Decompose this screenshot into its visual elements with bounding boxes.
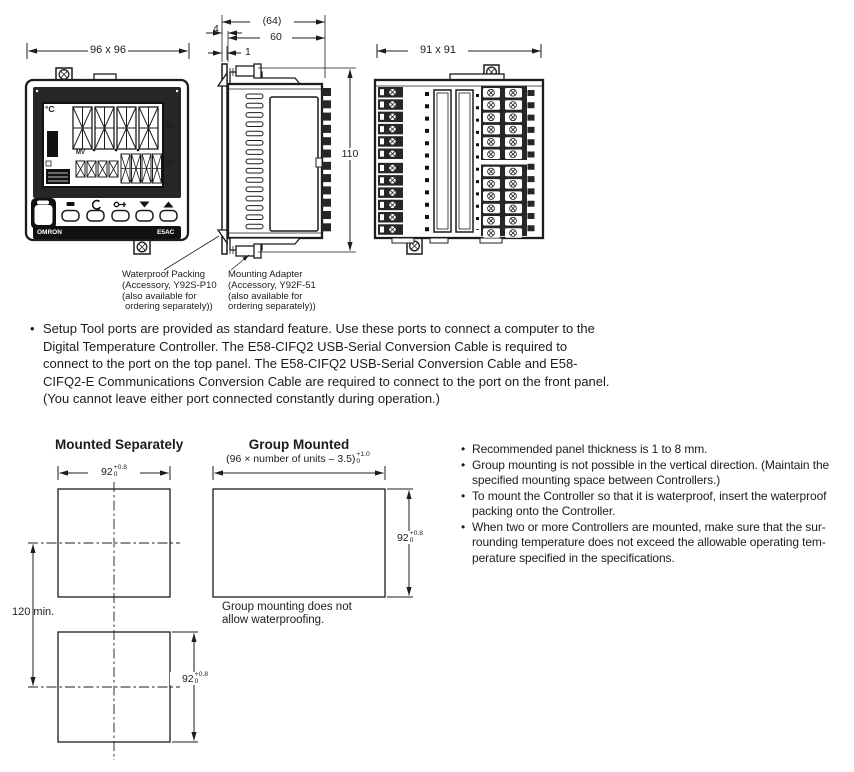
- mounting-adapter-callout: Mounting Adapter (Accessory, Y92F-51 (al…: [228, 270, 316, 313]
- side-height-dimension: 110: [334, 148, 366, 160]
- note-line: specified mounting space between Control…: [472, 473, 829, 489]
- bullet: •: [461, 458, 472, 489]
- setup-note-line: connect to the port on the top panel. Th…: [43, 355, 610, 373]
- group-mounted-drawing: [213, 466, 413, 597]
- dim-tolerance-lower: 0: [410, 538, 423, 545]
- front-panel-display: [43, 103, 163, 187]
- temp-unit-indicator: °C: [45, 104, 55, 114]
- terminal-edge: [322, 88, 331, 231]
- mv-label: MV: [76, 150, 85, 156]
- front-view-drawing: [26, 43, 189, 254]
- setup-tool-port-cover: [31, 198, 56, 229]
- waterproof-packing-callout: Waterproof Packing (Accessory, Y92S-P10 …: [122, 270, 217, 313]
- setup-note-line: Setup Tool ports are provided as standar…: [43, 320, 610, 338]
- dim-tolerance-lower: 0: [114, 472, 127, 479]
- level-button: [62, 211, 79, 222]
- brand-logo: OMRON: [37, 229, 62, 236]
- side-panel-gap-dimension: 1: [245, 46, 251, 58]
- setup-note-line: Digital Temperature Controller. The E58-…: [43, 338, 610, 356]
- pv-label: PV: [165, 123, 174, 130]
- up-button: [160, 211, 177, 222]
- setup-note-line: (You cannot leave either port connected …: [43, 390, 610, 408]
- dim-value: 92: [101, 466, 113, 478]
- side-body-depth-dimension: 60: [256, 31, 296, 43]
- callout-line: (Accessory, Y92F-51: [228, 281, 316, 292]
- bullet: •: [461, 489, 472, 520]
- note-item: • Group mounting is not possible in the …: [461, 458, 854, 489]
- sv-label: SV: [165, 159, 174, 166]
- group-mounted-title: Group Mounted: [213, 437, 385, 452]
- side-view-drawing: [206, 15, 356, 258]
- mounting-adapter-shape: [230, 64, 300, 84]
- group-cutout-width-formula: (96 × number of units – 3.5)+1.00: [190, 452, 406, 465]
- group-mounting-caption: Group mounting does not allow waterproof…: [222, 601, 352, 627]
- vent-slots: [246, 94, 263, 229]
- down-button: [136, 211, 153, 222]
- note-line: perature specified in the specifications…: [472, 551, 826, 567]
- caption-line: Group mounting does not: [222, 601, 352, 614]
- terminal-block-right: [481, 86, 531, 238]
- note-item: • Recommended panel thickness is 1 to 8 …: [461, 442, 854, 458]
- dim-value: 92: [397, 532, 409, 544]
- model-logo: E5AC: [157, 229, 174, 236]
- datasheet-page: 96 x 96 (64) 4 60 1 110 91 x 91 °C PV MV…: [0, 0, 854, 772]
- note-item: • When two or more Controllers are mount…: [461, 520, 854, 567]
- rear-width-dimension: 91 x 91: [404, 44, 472, 56]
- side-bezel-depth-dimension: 4: [213, 23, 219, 35]
- separate-cutout-width-dimension: 92+0.80: [84, 465, 144, 478]
- side-overall-depth-dimension: (64): [250, 15, 294, 27]
- note-item: • To mount the Controller so that it is …: [461, 489, 854, 520]
- mounting-screw-icon: [134, 239, 150, 254]
- mounted-separately-title: Mounted Separately: [55, 437, 183, 452]
- setup-note-line: CIFQ2-E Communications Conversion Cable …: [43, 373, 610, 391]
- shift-button: [112, 211, 129, 222]
- min-spacing-dimension: 120 min.: [12, 606, 54, 618]
- bullet: •: [461, 442, 472, 458]
- dim-value: (96 × number of units – 3.5): [226, 453, 355, 465]
- mounting-notes-list: • Recommended panel thickness is 1 to 8 …: [461, 442, 854, 566]
- separate-cutout-height-dimension: 92+0.80: [170, 672, 220, 685]
- callout-line: ordering separately)): [122, 302, 217, 313]
- mode-button: [87, 211, 104, 222]
- rear-view-drawing: [375, 44, 543, 254]
- setup-tool-note: Setup Tool ports are provided as standar…: [43, 320, 610, 408]
- note-line: packing onto the Controller.: [472, 504, 826, 520]
- bullet: •: [30, 321, 35, 336]
- callout-line: ordering separately)): [228, 302, 316, 313]
- callout-line: (Accessory, Y92S-P10: [122, 281, 217, 292]
- group-cutout-height-dimension: 92+0.80: [387, 531, 433, 544]
- mounting-adapter-shape: [230, 238, 300, 258]
- note-line: Group mounting is not possible in the ve…: [472, 458, 829, 474]
- dim-tolerance-lower: 0: [195, 679, 208, 686]
- note-line: rounding temperature does not exceed the…: [472, 535, 826, 551]
- note-line: Recommended panel thickness is 1 to 8 mm…: [472, 442, 707, 458]
- level-key-icon: [67, 202, 75, 206]
- front-width-dimension: 96 x 96: [84, 44, 132, 56]
- bullet: •: [461, 520, 472, 567]
- note-line: When two or more Controllers are mounted…: [472, 520, 826, 536]
- dim-value: 92: [182, 673, 194, 685]
- note-line: To mount the Controller so that it is wa…: [472, 489, 826, 505]
- dim-tolerance-lower: 0: [356, 459, 369, 466]
- caption-line: allow waterproofing.: [222, 614, 352, 627]
